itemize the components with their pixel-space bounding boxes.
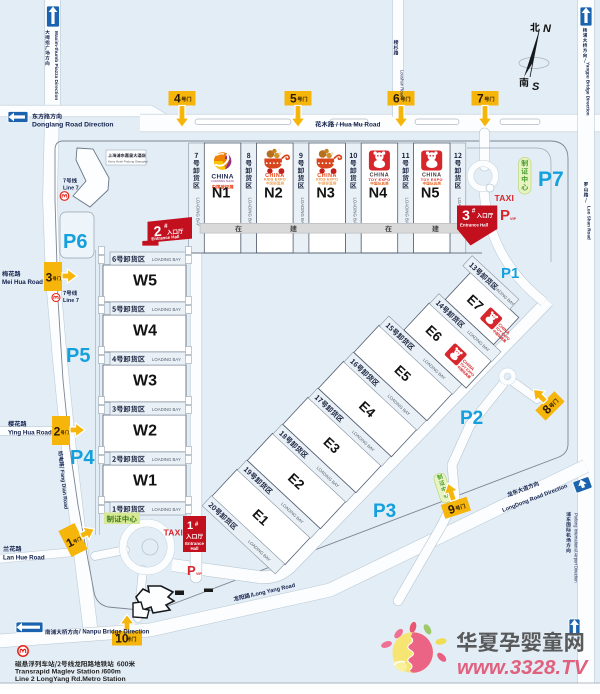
svg-text:W2: W2 xyxy=(133,423,157,440)
svg-text:P5: P5 xyxy=(66,345,90,367)
svg-text:Transrapid Maglev Station /60: Transrapid Maglev Station /600m xyxy=(15,669,121,676)
svg-text:7: 7 xyxy=(477,92,484,106)
svg-text:Loushan Road: Loushan Road xyxy=(400,70,405,98)
svg-text:5: 5 xyxy=(290,92,297,106)
svg-text:Pudong International Airport D: Pudong International Airport Direction xyxy=(574,513,579,583)
svg-text:Line 7: Line 7 xyxy=(63,298,79,304)
svg-text:N4: N4 xyxy=(369,186,388,202)
svg-text:Line 2 LongYang Rd.Metro Stati: Line 2 LongYang Rd.Metro Station xyxy=(15,676,126,683)
svg-text:LOADING BAY: LOADING BAY xyxy=(152,457,181,462)
svg-text:3: 3 xyxy=(46,271,53,285)
svg-text:KIDS EXPO: KIDS EXPO xyxy=(316,178,338,182)
svg-text:Entrance Hall: Entrance Hall xyxy=(460,223,488,228)
svg-text:Line 7: Line 7 xyxy=(63,186,79,192)
svg-text:W3: W3 xyxy=(133,373,157,390)
svg-text:N5: N5 xyxy=(421,186,440,202)
svg-text:P4: P4 xyxy=(70,447,95,469)
svg-text:LOADING BAY: LOADING BAY xyxy=(195,198,200,227)
svg-text:LOADING BAY: LOADING BAY xyxy=(152,407,181,412)
svg-text:P: P xyxy=(187,563,196,578)
svg-text:P6: P6 xyxy=(63,231,87,253)
svg-text:W1: W1 xyxy=(133,473,157,490)
svg-text:P7: P7 xyxy=(538,168,564,191)
svg-text:LOADING BAY: LOADING BAY xyxy=(248,198,253,227)
svg-text:TOY EXPO: TOY EXPO xyxy=(421,177,443,182)
svg-text:LOADING BAY: LOADING BAY xyxy=(152,257,181,262)
svg-text:/ Hua Mu Road: / Hua Mu Road xyxy=(336,122,380,129)
svg-text:Lan Hue Road: Lan Hue Road xyxy=(3,555,45,562)
svg-text:LOADING BAY: LOADING BAY xyxy=(300,198,305,227)
svg-text:W4: W4 xyxy=(133,323,157,340)
svg-text:N3: N3 xyxy=(316,186,335,202)
svg-text:LICENSING SHOW: LICENSING SHOW xyxy=(211,179,234,183)
svg-text:Mei Hua Road: Mei Hua Road xyxy=(2,279,43,286)
svg-text:KIDS EXPO: KIDS EXPO xyxy=(264,178,286,182)
svg-text:W5: W5 xyxy=(133,273,157,290)
svg-text:Kerry Hotel Pudong Shanghai: Kerry Hotel Pudong Shanghai xyxy=(108,160,148,164)
svg-text:P2: P2 xyxy=(460,408,483,429)
svg-text:www.3328.TV: www.3328.TV xyxy=(457,656,590,679)
svg-text:VIP: VIP xyxy=(196,572,202,576)
svg-text:P: P xyxy=(500,207,510,224)
svg-text:TOY EXPO: TOY EXPO xyxy=(368,177,390,182)
svg-text:Hall: Hall xyxy=(190,546,198,551)
svg-text:Donglang Road Direction: Donglang Road Direction xyxy=(32,122,114,129)
svg-text:TAXI: TAXI xyxy=(164,528,184,538)
svg-text:VIP: VIP xyxy=(510,217,517,221)
svg-text:LOADING BAY: LOADING BAY xyxy=(152,507,181,512)
svg-text:N: N xyxy=(543,23,552,35)
svg-text:3: 3 xyxy=(462,207,470,223)
svg-text:4: 4 xyxy=(174,92,181,106)
svg-text:LOADING BAY: LOADING BAY xyxy=(352,198,357,227)
svg-text:LOADING BAY: LOADING BAY xyxy=(405,198,410,227)
svg-text:S: S xyxy=(532,81,540,93)
svg-text:Maxim-thumb Piazza Direction: Maxim-thumb Piazza Direction xyxy=(53,31,59,100)
svg-text:N2: N2 xyxy=(264,186,283,202)
svg-text:P3: P3 xyxy=(373,501,396,522)
svg-text:/ Nanpu Bridge Direction: / Nanpu Bridge Direction xyxy=(79,630,150,636)
svg-text:LOADING BAY: LOADING BAY xyxy=(152,307,181,312)
svg-text:Yangpu Bridge Direction: Yangpu Bridge Direction xyxy=(586,62,591,116)
svg-text:LOADING BAY: LOADING BAY xyxy=(152,357,181,362)
svg-text:P1: P1 xyxy=(501,265,519,282)
svg-text:1: 1 xyxy=(187,520,193,532)
svg-text:N1: N1 xyxy=(212,186,231,202)
svg-text:TAXI: TAXI xyxy=(495,193,515,203)
svg-text:Luo Shan Road: Luo Shan Road xyxy=(587,206,592,240)
svg-text:2: 2 xyxy=(54,425,61,439)
svg-text:Ying Hua Road: Ying Hua Road xyxy=(8,430,52,437)
svg-text:#: # xyxy=(472,208,476,215)
svg-text:6: 6 xyxy=(393,92,400,106)
